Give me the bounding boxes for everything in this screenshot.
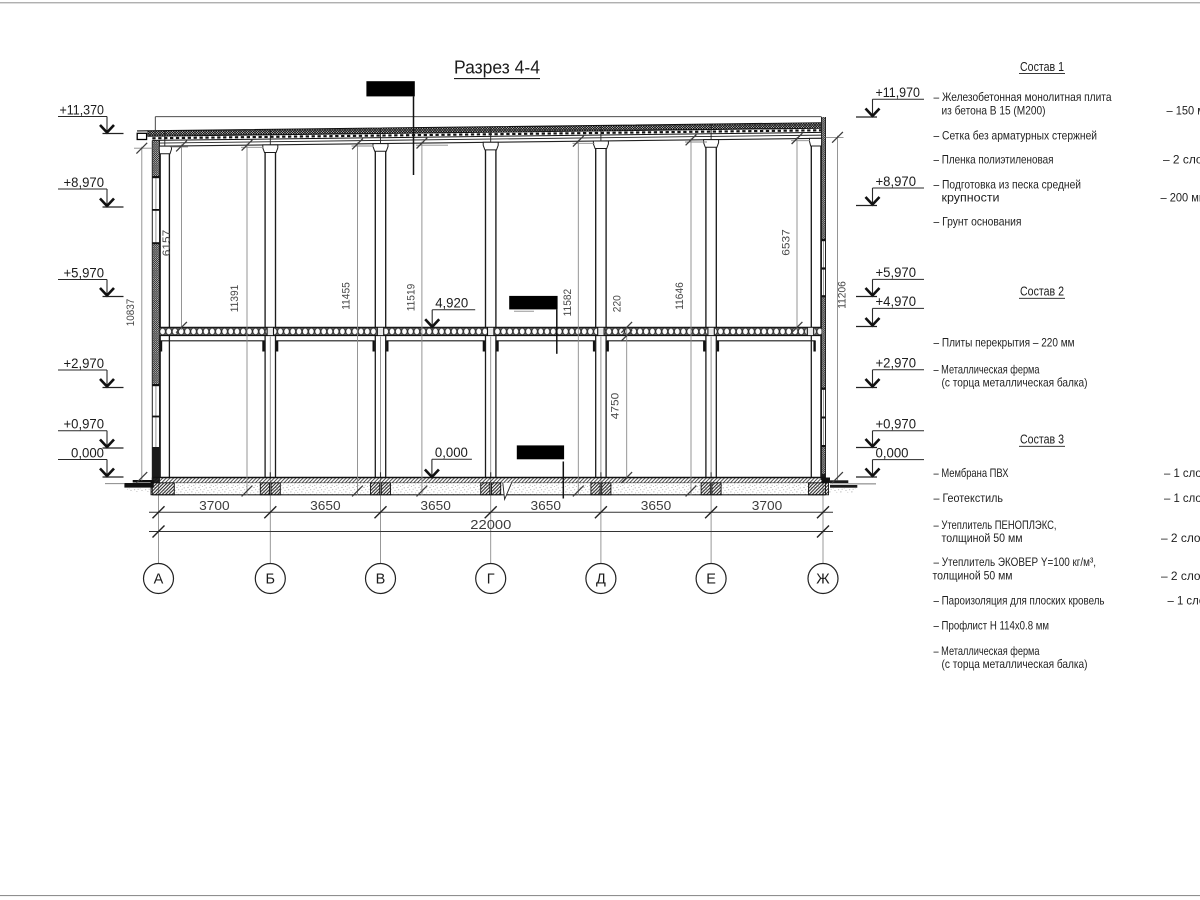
svg-text:6537: 6537 <box>780 229 792 256</box>
svg-text:4750: 4750 <box>609 393 621 420</box>
svg-text:(с торца металлическая балка): (с торца металлическая балка) <box>942 657 1088 671</box>
svg-text:11519: 11519 <box>405 284 417 312</box>
svg-text:– 1 слой: – 1 слой <box>1164 466 1200 480</box>
svg-text:+11,370: +11,370 <box>60 102 105 117</box>
svg-text:3650: 3650 <box>420 498 451 513</box>
svg-text:+4,970: +4,970 <box>876 294 917 309</box>
svg-text:+2,970: +2,970 <box>64 356 105 371</box>
svg-text:крупности: крупности <box>942 191 1000 205</box>
svg-text:– Металлическая ферма: – Металлическая ферма <box>934 363 1040 377</box>
svg-text:Ж: Ж <box>816 572 830 588</box>
svg-text:+8,970: +8,970 <box>876 174 917 189</box>
svg-text:А: А <box>154 572 164 588</box>
svg-text:+8,970: +8,970 <box>64 175 105 190</box>
svg-text:3700: 3700 <box>199 498 230 513</box>
svg-text:толщиной 50 мм: толщиной 50 мм <box>933 569 1013 583</box>
svg-text:– Геотекстиль: – Геотекстиль <box>934 491 1004 505</box>
svg-text:– Металлическая ферма: – Металлическая ферма <box>934 644 1040 658</box>
svg-text:– 2 слоя: – 2 слоя <box>1163 153 1200 167</box>
svg-text:толщиной 50 мм: толщиной 50 мм <box>942 531 1023 545</box>
svg-text:3650: 3650 <box>531 498 562 513</box>
svg-text:6157: 6157 <box>161 230 173 257</box>
svg-text:(с торца металлическая балка): (с торца металлическая балка) <box>942 376 1088 390</box>
svg-text:– 150 мм: – 150 мм <box>1167 104 1200 118</box>
svg-text:– 200 мм: – 200 мм <box>1161 191 1200 205</box>
svg-text:220: 220 <box>612 295 624 312</box>
svg-text:из бетона В 15 (М200): из бетона В 15 (М200) <box>942 104 1046 118</box>
svg-text:Состав 1: Состав 1 <box>1020 59 1064 74</box>
svg-text:– Утеплитель ПЕНОПЛЭКС,: – Утеплитель ПЕНОПЛЭКС, <box>934 518 1057 532</box>
svg-text:10837: 10837 <box>125 299 137 327</box>
svg-text:– Пароизоляция для плоских кр: – Пароизоляция для плоских кровель <box>934 594 1105 608</box>
svg-text:– Подготовка из песка средней: – Подготовка из песка средней <box>934 178 1082 192</box>
svg-text:+0,970: +0,970 <box>64 417 105 432</box>
svg-text:+2,970: +2,970 <box>876 356 917 371</box>
svg-text:– Грунт основания: – Грунт основания <box>934 215 1022 229</box>
svg-text:– 1 слой: – 1 слой <box>1164 491 1200 505</box>
svg-text:0,000: 0,000 <box>876 445 909 460</box>
svg-text:3650: 3650 <box>310 498 341 513</box>
svg-text:– 1 слой: – 1 слой <box>1168 594 1200 608</box>
svg-text:+0,970: +0,970 <box>876 417 917 432</box>
svg-text:Состав 3: Состав 3 <box>1020 432 1064 447</box>
svg-text:– Профлист Н 114х0.8 мм: – Профлист Н 114х0.8 мм <box>934 619 1050 633</box>
svg-text:Состав 2: Состав 2 <box>1020 284 1064 299</box>
svg-text:11455: 11455 <box>341 282 353 310</box>
svg-text:Д: Д <box>596 572 606 588</box>
svg-text:3700: 3700 <box>752 498 783 513</box>
svg-text:– Железобетонная монолитная: – Железобетонная монолитная плита <box>934 90 1112 104</box>
svg-text:11391: 11391 <box>229 285 241 313</box>
svg-text:4,920: 4,920 <box>435 296 468 311</box>
svg-text:– 2 слоя: – 2 слоя <box>1161 569 1200 583</box>
svg-text:+5,970: +5,970 <box>64 265 105 280</box>
svg-text:Е: Е <box>706 572 716 588</box>
svg-text:+11,970: +11,970 <box>876 85 921 100</box>
svg-text:22000: 22000 <box>470 517 511 532</box>
svg-text:+5,970: +5,970 <box>876 265 917 280</box>
svg-text:Б: Б <box>266 572 276 588</box>
svg-text:– 2 слоя: – 2 слоя <box>1161 531 1200 545</box>
svg-text:Г: Г <box>487 572 495 588</box>
svg-text:11206: 11206 <box>837 281 849 309</box>
svg-text:– Мембрана ПВХ: – Мембрана ПВХ <box>934 466 1009 480</box>
svg-text:– Плиты перекрытия – 220 мм: – Плиты перекрытия – 220 мм <box>934 336 1075 350</box>
svg-text:– Сетка без арматурных стержн: – Сетка без арматурных стержней <box>934 129 1098 143</box>
svg-text:Разрез 4-4: Разрез 4-4 <box>454 58 540 78</box>
svg-text:0,000: 0,000 <box>435 445 468 460</box>
svg-text:– Пленка полиэтиленовая: – Пленка полиэтиленовая <box>934 153 1054 167</box>
svg-text:11646: 11646 <box>674 282 686 310</box>
svg-text:В: В <box>376 572 386 588</box>
svg-text:– Утеплитель ЭКОВЕР Y=100 кг/: – Утеплитель ЭКОВЕР Y=100 кг/м³, <box>934 555 1097 569</box>
svg-text:0,000: 0,000 <box>71 445 104 460</box>
svg-text:3650: 3650 <box>641 498 672 513</box>
svg-text:11582: 11582 <box>562 289 574 317</box>
